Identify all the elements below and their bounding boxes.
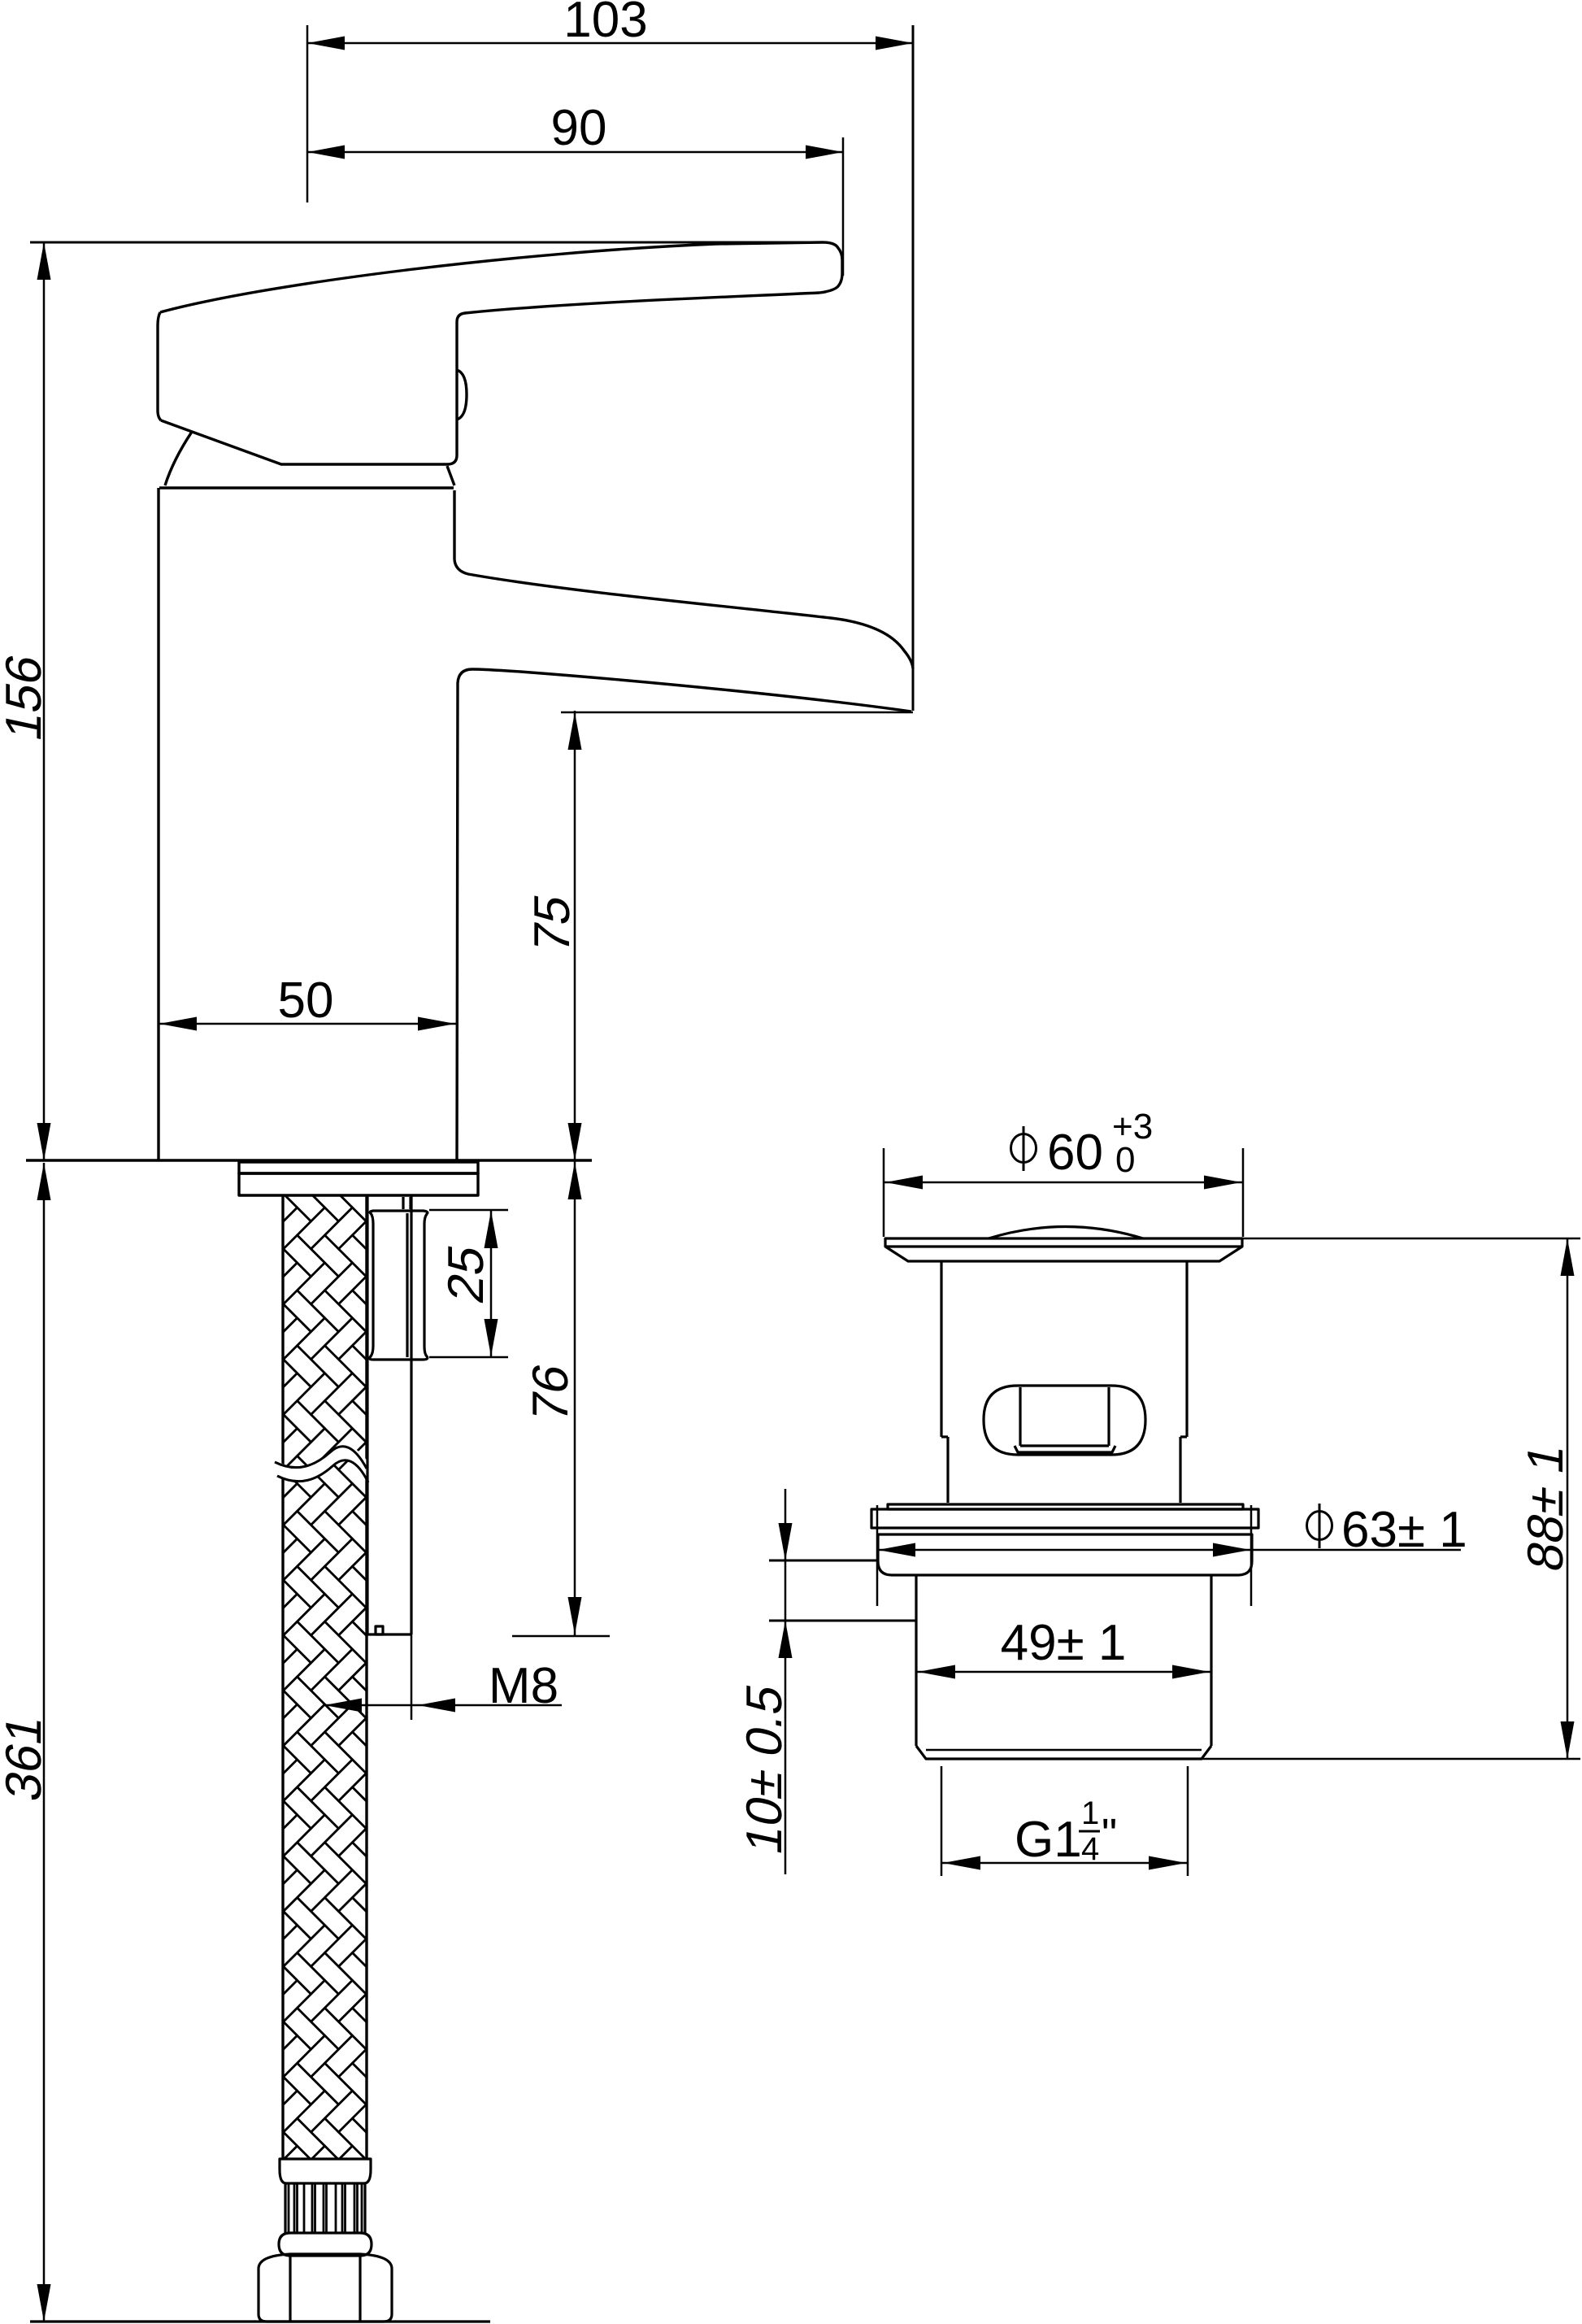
svg-text:49± 1: 49± 1	[1001, 1615, 1127, 1671]
svg-text:50: 50	[278, 973, 334, 1029]
svg-text:": "	[1102, 1810, 1117, 1859]
svg-text:88± 1: 88± 1	[1518, 1438, 1574, 1576]
svg-text:156: 156	[0, 650, 52, 746]
svg-text:60: 60	[1047, 1125, 1103, 1181]
svg-text:361: 361	[0, 1710, 52, 1806]
svg-text:63± 1: 63± 1	[1341, 1502, 1467, 1558]
svg-text:4: 4	[1081, 1831, 1099, 1867]
svg-text:0: 0	[1115, 1140, 1135, 1180]
svg-text:103: 103	[563, 0, 647, 48]
svg-text:10± 0.5: 10± 0.5	[737, 1679, 793, 1859]
svg-text:25: 25	[438, 1240, 494, 1308]
svg-text:1: 1	[1081, 1795, 1099, 1831]
svg-text:75: 75	[524, 890, 580, 958]
svg-text:76: 76	[523, 1359, 579, 1427]
svg-text:90: 90	[551, 100, 607, 156]
svg-text:M8: M8	[489, 1658, 558, 1714]
svg-text:G1: G1	[1015, 1812, 1082, 1868]
